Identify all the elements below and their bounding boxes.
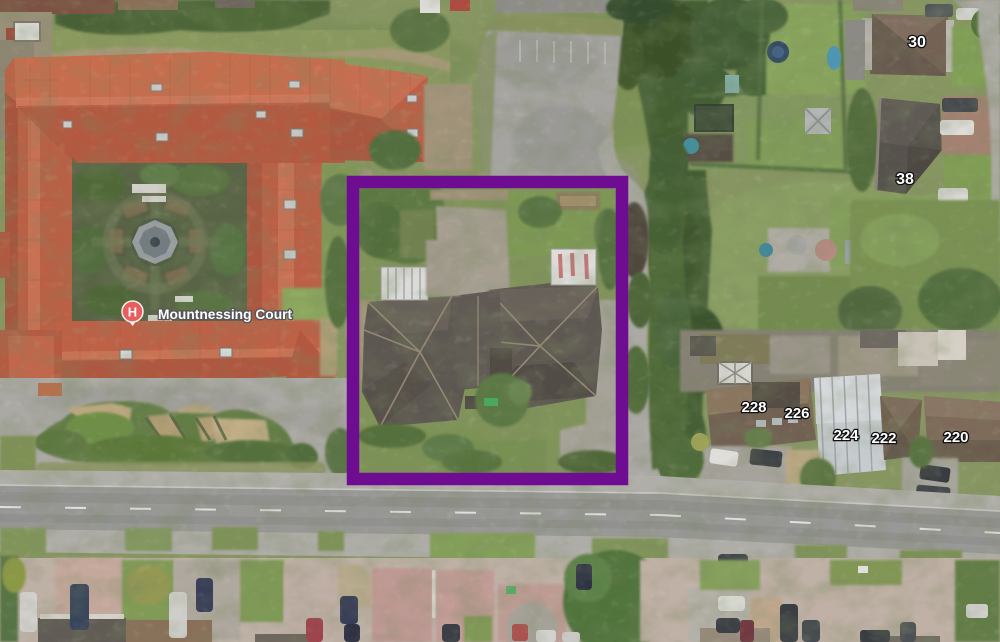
svg-text:224: 224 bbox=[833, 427, 859, 444]
svg-text:30: 30 bbox=[908, 34, 926, 51]
svg-text:222: 222 bbox=[871, 430, 896, 447]
svg-text:38: 38 bbox=[896, 171, 914, 188]
svg-text:228: 228 bbox=[741, 399, 766, 416]
svg-text:220: 220 bbox=[943, 429, 968, 446]
svg-text:H: H bbox=[128, 305, 137, 320]
svg-text:226: 226 bbox=[784, 405, 809, 422]
svg-text:Mountnessing Court: Mountnessing Court bbox=[158, 307, 293, 322]
